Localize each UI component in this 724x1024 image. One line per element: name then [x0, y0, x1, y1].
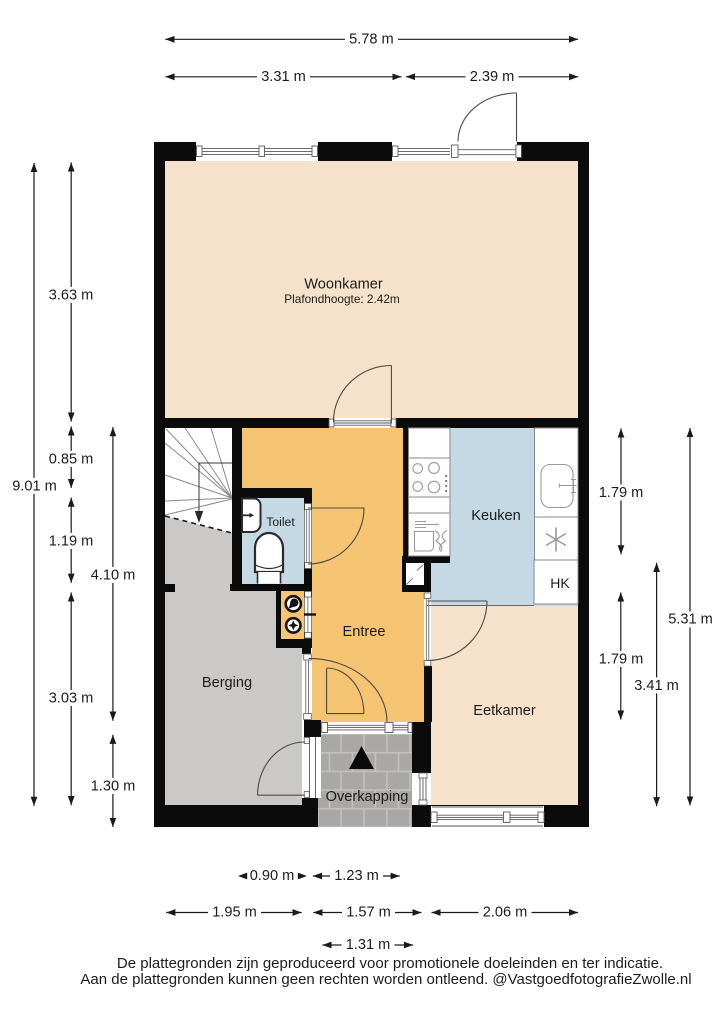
svg-text:De plattegronden zijn geproduc: De plattegronden zijn geproduceerd voor … [117, 955, 663, 972]
svg-text:Toilet: Toilet [266, 515, 295, 529]
svg-text:Berging: Berging [202, 675, 252, 691]
svg-text:2.06 m: 2.06 m [483, 905, 528, 921]
svg-text:3.41 m: 3.41 m [634, 678, 679, 694]
svg-text:Keuken: Keuken [471, 508, 521, 524]
svg-text:5.78 m: 5.78 m [349, 32, 394, 48]
svg-text:4.10 m: 4.10 m [91, 567, 136, 583]
svg-text:3.31 m: 3.31 m [261, 69, 306, 85]
svg-text:1.57 m: 1.57 m [346, 905, 391, 921]
svg-text:9.01 m: 9.01 m [12, 478, 57, 494]
svg-text:Overkapping: Overkapping [326, 789, 409, 805]
svg-text:Plafondhoogte: 2.42m: Plafondhoogte: 2.42m [284, 292, 400, 306]
svg-text:Aan de plattegronden kunnen ge: Aan de plattegronden kunnen geen rechten… [80, 971, 691, 988]
svg-text:5.31 m: 5.31 m [668, 612, 713, 628]
svg-text:1.95 m: 1.95 m [212, 905, 257, 921]
svg-text:2.39 m: 2.39 m [470, 69, 515, 85]
svg-text:1.23 m: 1.23 m [334, 868, 379, 884]
svg-text:Woonkamer: Woonkamer [304, 277, 383, 293]
svg-text:1.79 m: 1.79 m [599, 651, 644, 667]
svg-text:3.03 m: 3.03 m [49, 690, 94, 706]
svg-text:0.85 m: 0.85 m [49, 451, 94, 467]
svg-text:Entree: Entree [343, 624, 386, 640]
svg-text:1.79 m: 1.79 m [599, 485, 644, 501]
svg-text:HK: HK [550, 575, 570, 591]
svg-text:Eetkamer: Eetkamer [473, 703, 536, 719]
svg-text:1.30 m: 1.30 m [91, 778, 136, 794]
svg-text:3.63 m: 3.63 m [49, 287, 94, 303]
svg-text:1.31 m: 1.31 m [346, 937, 391, 953]
svg-text:0.90 m: 0.90 m [250, 868, 295, 884]
svg-text:1.19 m: 1.19 m [49, 533, 94, 549]
